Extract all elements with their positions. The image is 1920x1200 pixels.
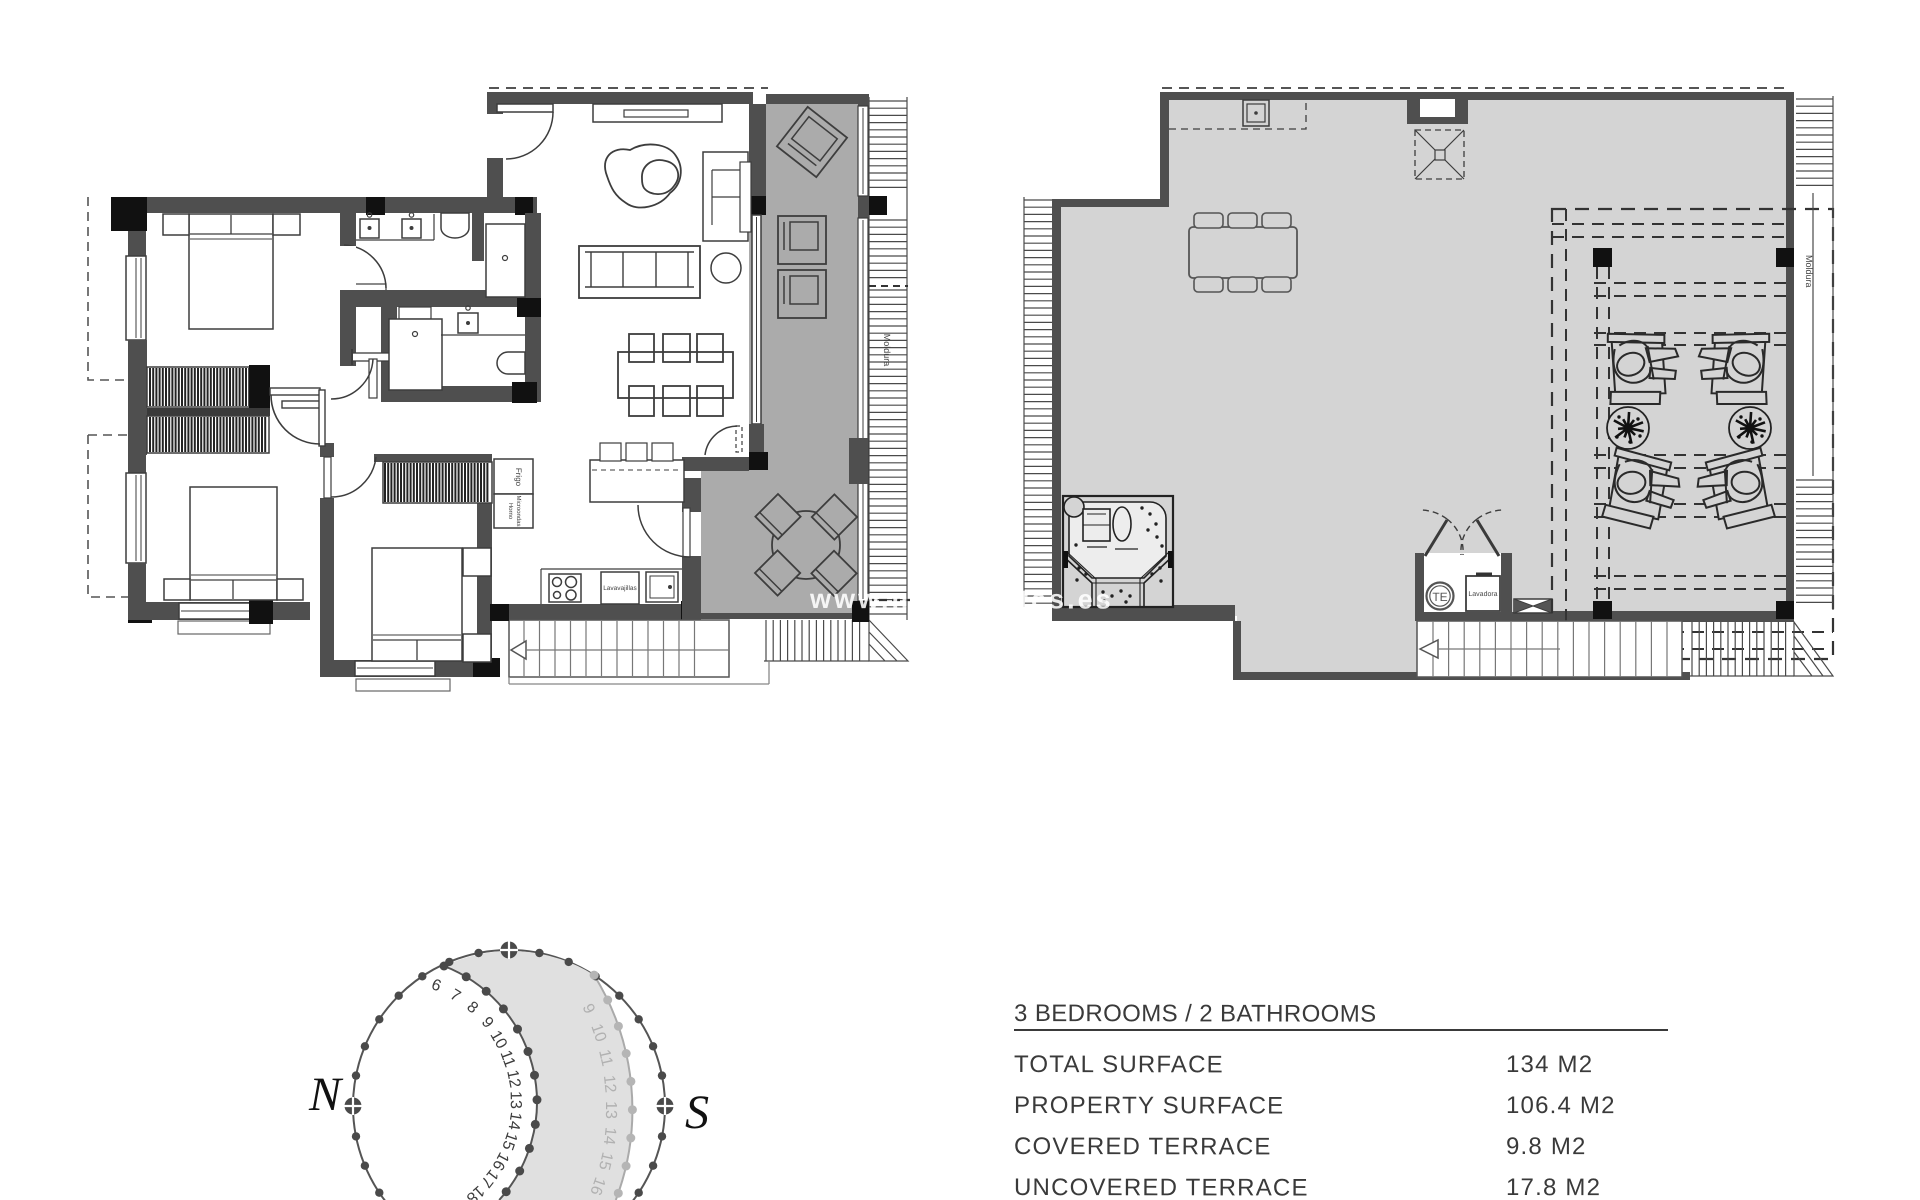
svg-text:134 M2: 134 M2 <box>1506 1051 1593 1078</box>
svg-text:Lavavajillas: Lavavajillas <box>603 585 637 592</box>
svg-text:12: 12 <box>600 1074 619 1094</box>
svg-text:S: S <box>685 1086 709 1139</box>
svg-text:Horno: Horno <box>507 503 514 520</box>
svg-text:9.8 M2: 9.8 M2 <box>1506 1133 1587 1160</box>
svg-text:3 BEDROOMS / 2 BATHROOMS: 3 BEDROOMS / 2 BATHROOMS <box>1014 1000 1377 1028</box>
svg-text:12: 12 <box>503 1069 523 1090</box>
svg-text:14: 14 <box>504 1111 524 1131</box>
svg-text:Moldura: Moldura <box>1804 255 1814 288</box>
svg-text:Microondas: Microondas <box>515 495 522 526</box>
svg-text:Moldura: Moldura <box>882 334 892 367</box>
svg-text:Frigo: Frigo <box>514 468 523 487</box>
svg-text:13: 13 <box>507 1091 524 1109</box>
svg-text:TE: TE <box>1432 590 1447 604</box>
svg-text:17.8 M2: 17.8 M2 <box>1506 1174 1601 1200</box>
svg-text:COVERED TERRACE: COVERED TERRACE <box>1014 1133 1272 1160</box>
svg-text:UNCOVERED TERRACE: UNCOVERED TERRACE <box>1014 1174 1309 1200</box>
svg-text:N: N <box>308 1068 344 1121</box>
svg-text:13: 13 <box>602 1101 619 1119</box>
svg-text:106.4 M2: 106.4 M2 <box>1506 1092 1616 1119</box>
svg-text:Lavadora: Lavadora <box>1468 590 1497 598</box>
svg-text:PROPERTY SURFACE: PROPERTY SURFACE <box>1014 1092 1284 1119</box>
svg-text:www.newestates.es: www.newestates.es <box>809 584 1114 615</box>
svg-text:TOTAL SURFACE: TOTAL SURFACE <box>1014 1051 1224 1078</box>
svg-text:14: 14 <box>600 1126 619 1146</box>
